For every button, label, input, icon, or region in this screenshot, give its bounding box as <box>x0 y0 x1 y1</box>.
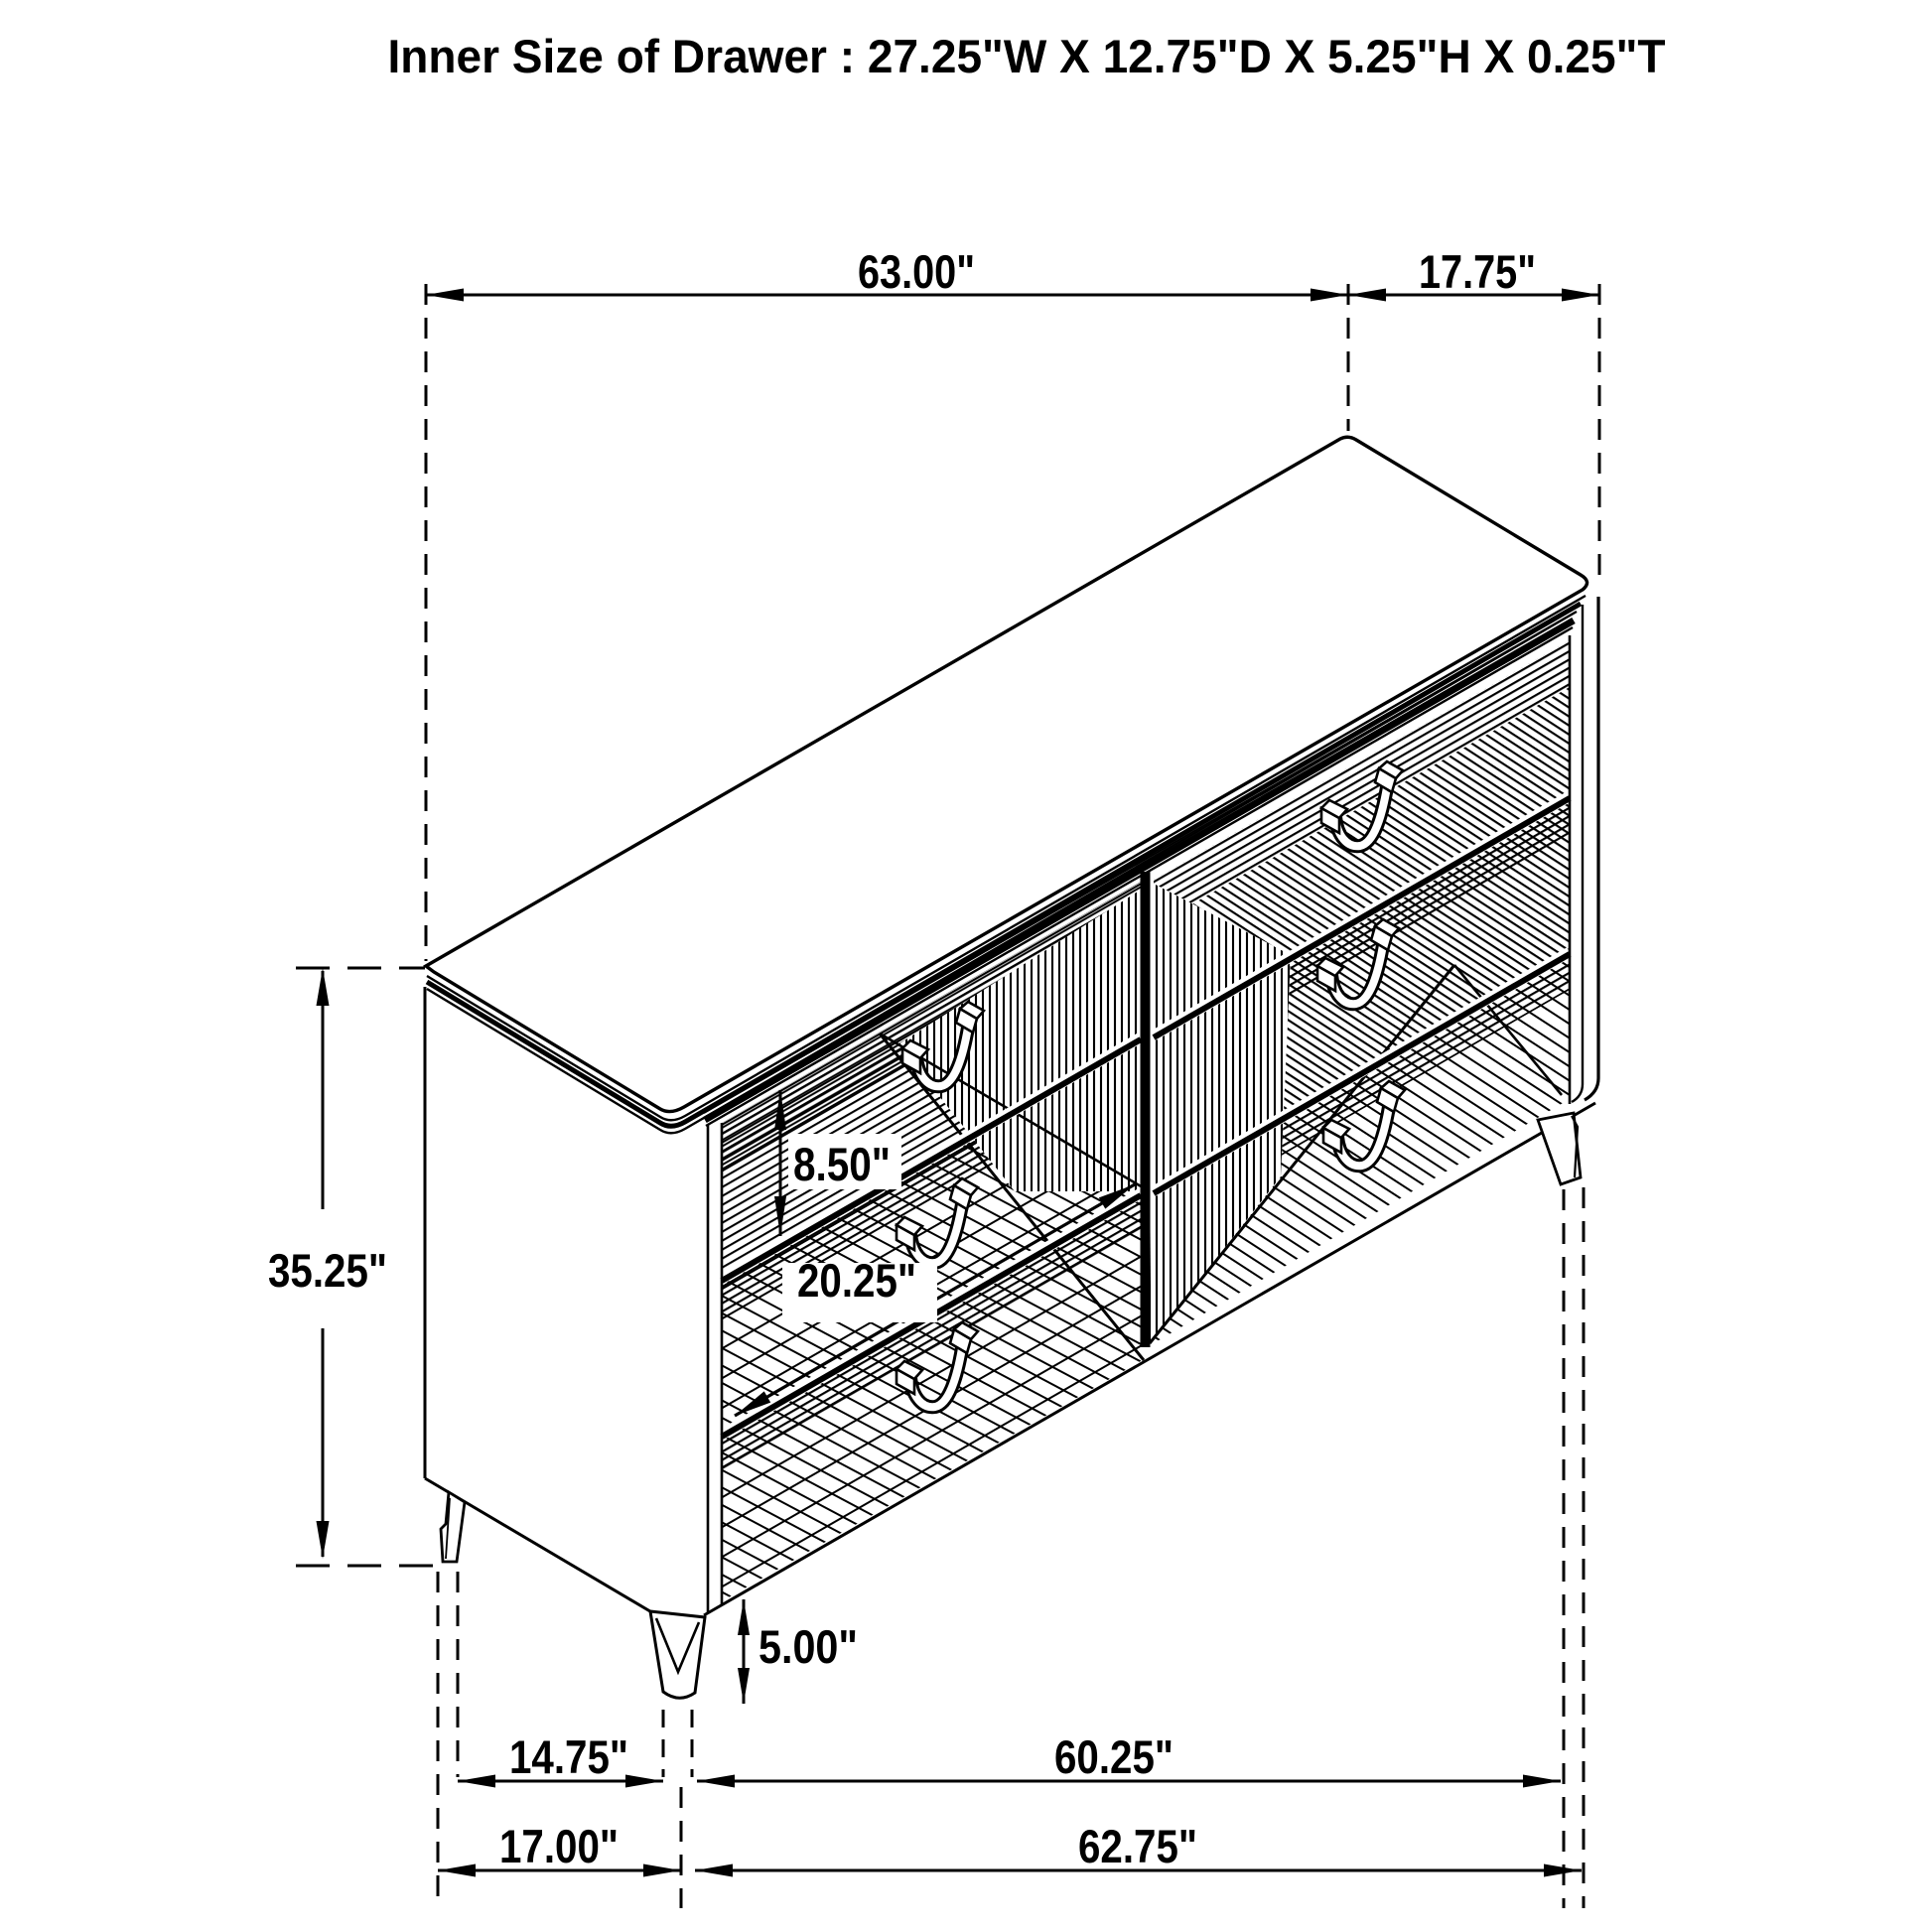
svg-text:5.00": 5.00" <box>759 1620 858 1673</box>
svg-text:14.75": 14.75" <box>509 1730 628 1783</box>
svg-text:62.75": 62.75" <box>1078 1820 1197 1872</box>
svg-text:Inner Size of Drawer : 27.25"W: Inner Size of Drawer : 27.25"W X 12.75"D… <box>388 30 1666 82</box>
svg-text:20.25": 20.25" <box>797 1254 916 1307</box>
svg-text:17.00": 17.00" <box>499 1820 619 1872</box>
svg-text:63.00": 63.00" <box>858 245 975 298</box>
svg-text:60.25": 60.25" <box>1054 1730 1173 1783</box>
svg-text:8.50": 8.50" <box>793 1138 891 1190</box>
svg-text:35.25": 35.25" <box>268 1244 387 1297</box>
svg-text:17.75": 17.75" <box>1419 245 1536 298</box>
